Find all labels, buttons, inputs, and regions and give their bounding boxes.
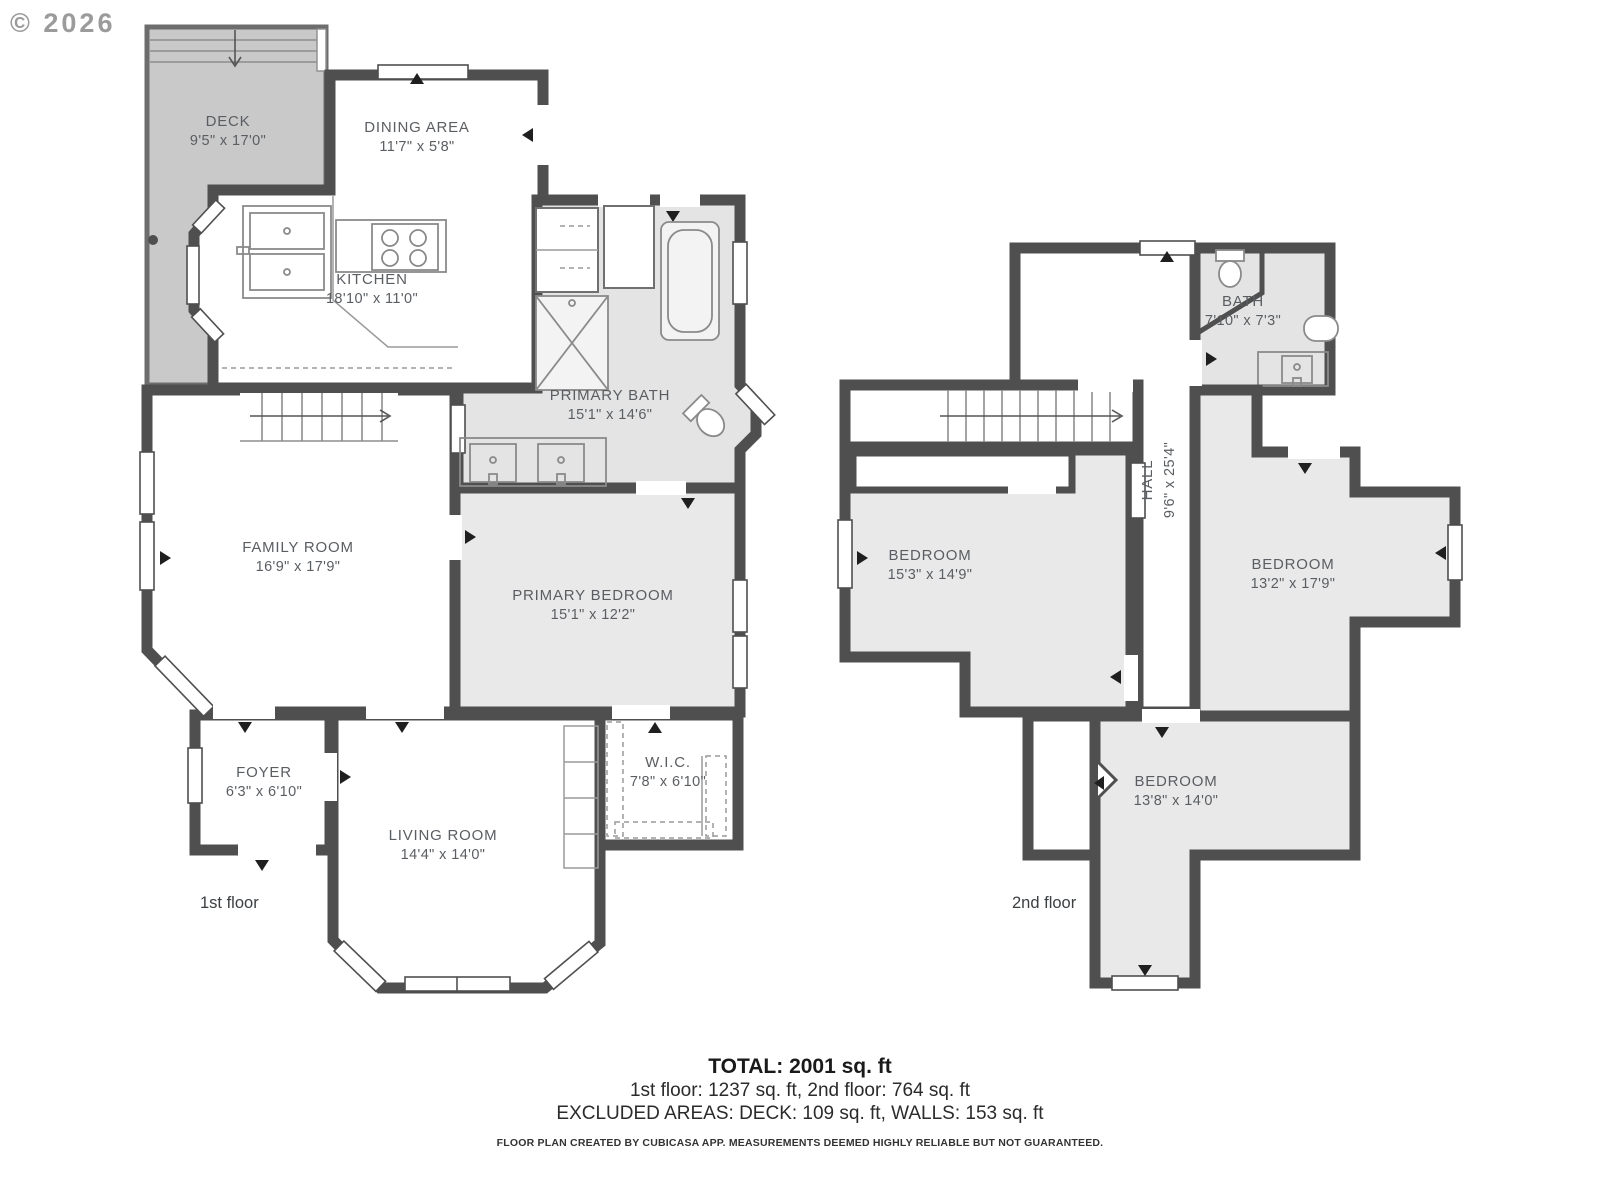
bathtub-icon	[661, 222, 719, 340]
dims-wic: 7'8" x 6'10"	[630, 774, 706, 790]
label-deck: DECK	[206, 113, 251, 130]
kitchen-sink	[237, 206, 331, 298]
floor-tag-first: 1st floor	[200, 894, 259, 912]
room-bedroom-bottom	[1028, 716, 1355, 983]
room-foyer	[195, 715, 330, 850]
label-living: LIVING ROOM	[389, 827, 498, 844]
floor-plan-page: DECK 9'5" x 17'0" DINING AREA 11'7" x 5'…	[0, 0, 1600, 1200]
label-foyer: FOYER	[236, 764, 292, 781]
dims-bath2: 7'10" x 7'3"	[1205, 313, 1281, 329]
label-primary-bath: PRIMARY BATH	[550, 387, 670, 404]
dims-hall: 9'6" x 25'4"	[1162, 442, 1178, 518]
summary-total: TOTAL: 2001 sq. ft	[708, 1055, 892, 1078]
label-kitchen: KITCHEN	[336, 271, 407, 288]
label-wic: W.I.C.	[645, 754, 691, 771]
deck-post	[148, 235, 158, 245]
hall-closet	[604, 206, 654, 288]
stairs-second-floor	[845, 378, 1138, 447]
dims-bedroom-bottom: 13'8" x 14'0"	[1134, 793, 1219, 809]
label-bedroom-bottom: BEDROOM	[1134, 773, 1217, 790]
shower-icon	[536, 296, 608, 390]
dims-primary-bedroom: 15'1" x 12'2"	[551, 607, 636, 623]
bedroom-bottom-closet	[1028, 716, 1095, 855]
dims-living: 14'4" x 14'0"	[401, 847, 486, 863]
kitchen-island	[336, 220, 446, 272]
room-bedroom-right	[1195, 390, 1455, 716]
floor-tag-second: 2nd floor	[1012, 894, 1077, 912]
dims-kitchen: 18'10" x 11'0"	[326, 291, 418, 307]
disclaimer-text: FLOOR PLAN CREATED BY CUBICASA APP. MEAS…	[497, 1137, 1104, 1149]
dims-dining: 11'7" x 5'8"	[379, 139, 454, 155]
stairs-first-floor	[240, 393, 398, 441]
label-dining: DINING AREA	[364, 119, 470, 136]
label-hall: HALL	[1139, 460, 1156, 501]
dims-family: 16'9" x 17'9"	[256, 559, 341, 575]
label-family: FAMILY ROOM	[242, 539, 354, 556]
label-bedroom-left: BEDROOM	[888, 547, 971, 564]
floor-plan-canvas: DECK 9'5" x 17'0" DINING AREA 11'7" x 5'…	[0, 0, 1600, 1200]
copyright-text: © 2026	[10, 8, 115, 38]
dims-bedroom-right: 13'2" x 17'9"	[1251, 576, 1336, 592]
bath2-sink	[1304, 316, 1338, 341]
dims-deck: 9'5" x 17'0"	[190, 133, 266, 149]
summary-block: TOTAL: 2001 sq. ft 1st floor: 1237 sq. f…	[497, 1055, 1104, 1149]
toilet-icon-2	[1216, 250, 1244, 287]
dims-bedroom-left: 15'3" x 14'9"	[888, 567, 973, 583]
dims-primary-bath: 15'1" x 14'6"	[568, 407, 653, 423]
label-primary-bedroom: PRIMARY BEDROOM	[512, 587, 673, 604]
dims-foyer: 6'3" x 6'10"	[226, 784, 302, 800]
label-bath2: BATH	[1222, 293, 1264, 310]
summary-excluded: EXCLUDED AREAS: DECK: 109 sq. ft, WALLS:…	[556, 1103, 1044, 1124]
stove-icon	[372, 224, 438, 270]
summary-floors: 1st floor: 1237 sq. ft, 2nd floor: 764 s…	[630, 1080, 971, 1101]
label-bedroom-right: BEDROOM	[1251, 556, 1334, 573]
